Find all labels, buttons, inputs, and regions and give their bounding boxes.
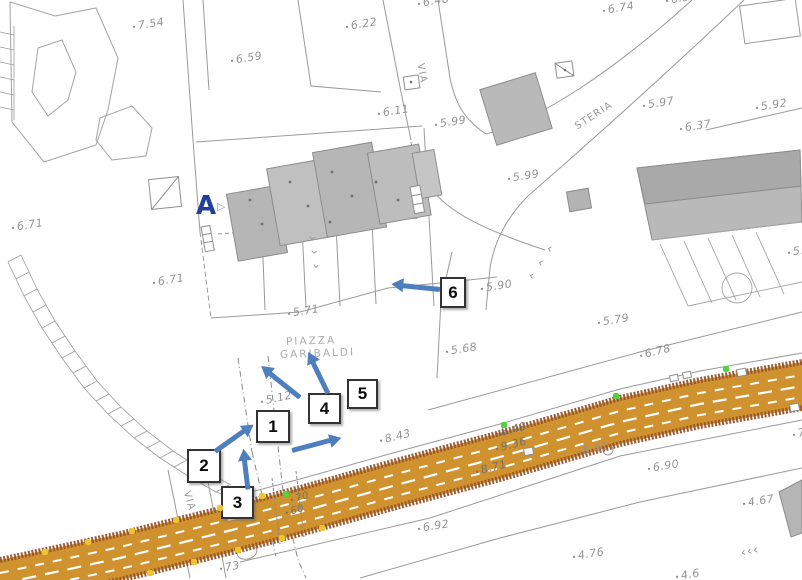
- callout-box-5[interactable]: 5: [347, 379, 378, 409]
- chevron-road-marking: ‹: [536, 255, 546, 271]
- elevation-label: 8.41: [577, 440, 610, 458]
- callout-box-3[interactable]: 3: [221, 486, 254, 519]
- elevation-label: 4.67: [742, 492, 775, 510]
- chevron-road-marking: ‹: [545, 241, 555, 257]
- place-label-piazza: PIAZZA: [286, 334, 337, 348]
- arrowhead-icon: [390, 277, 403, 292]
- road-edge-marker-yellow: [235, 547, 241, 553]
- callout-arrow-2[interactable]: [311, 361, 331, 394]
- chevron-road-marking: ‹: [527, 268, 537, 284]
- street-label-via: VIA: [181, 490, 197, 513]
- road-edge-marker-green: [283, 491, 289, 497]
- elevation-label: 73: [219, 559, 241, 575]
- arrowhead-icon: [257, 361, 275, 379]
- callout-box-1[interactable]: 1: [256, 410, 290, 443]
- elevation-label: 5.99: [434, 113, 467, 131]
- elevation-label: 5.71: [287, 302, 320, 320]
- road-edge-marker-yellow: [147, 570, 153, 576]
- elevation-label: 5.97: [642, 94, 675, 112]
- road-edge-marker-green: [723, 366, 729, 372]
- elevation-label: 6.11: [377, 102, 410, 120]
- callout-arrow-5[interactable]: [291, 437, 331, 452]
- road-edge-marker-yellow: [279, 535, 285, 541]
- elevation-label: 6.22: [345, 15, 378, 33]
- elevation-label: 5.99: [507, 167, 540, 185]
- road-edge-marker-yellow: [259, 493, 265, 499]
- elevation-label: 4.6: [675, 566, 701, 580]
- elevation-label: 6.37: [679, 117, 712, 135]
- arrowhead-icon: [239, 418, 257, 436]
- elevation-label: 5.79: [597, 311, 630, 329]
- road-edge-marker-yellow: [42, 549, 48, 555]
- road-elevation-label: 8.71: [474, 458, 508, 478]
- callout-box-6[interactable]: 6: [440, 277, 466, 308]
- arrowhead-icon: [328, 430, 343, 447]
- callout-arrow-6[interactable]: [402, 283, 441, 292]
- chevron-road-marking: ‹‹‹: [739, 542, 760, 561]
- chevron-road-marking: ›: [304, 235, 319, 242]
- road-edge-marker-yellow: [173, 517, 179, 523]
- elevation-label: 6.71: [152, 271, 185, 289]
- callout-box-4[interactable]: 4: [308, 393, 341, 424]
- section-marker-triangle-icon[interactable]: ▷: [217, 200, 225, 213]
- elevation-label: 4.76: [572, 545, 605, 563]
- elevation-label: 6.92: [417, 517, 450, 535]
- road-edge-marker-yellow: [319, 525, 325, 531]
- elevation-label: 5.92: [755, 96, 788, 114]
- callout-box-2[interactable]: 2: [187, 449, 221, 483]
- road-edge-marker-yellow: [85, 539, 91, 545]
- chevron-road-marking: ›: [308, 263, 323, 270]
- elevation-label: 6.48: [417, 0, 450, 10]
- elevation-label: 7.54: [132, 15, 165, 33]
- chevron-road-marking: ›: [306, 249, 321, 256]
- road-edge-marker-green: [613, 393, 619, 399]
- elevation-label: 6.90: [647, 457, 680, 475]
- elevation-label: 6.74: [602, 0, 635, 17]
- elevation-label: 7: [792, 426, 802, 441]
- elevation-label: 6.78: [638, 342, 672, 362]
- road-edge-marker-green: [501, 422, 507, 428]
- elevation-label: 6.71: [11, 216, 44, 234]
- road-edge-marker-yellow: [191, 559, 197, 565]
- elevation-label: 5.90: [480, 277, 513, 295]
- street-label-via: VIA: [415, 63, 429, 85]
- elevation-label: 5.9: [787, 242, 802, 259]
- annotations-layer: 7.546.596.226.486.746.545.976.375.926.11…: [0, 0, 802, 580]
- street-label-steria: STERIA: [573, 100, 615, 132]
- cadastral-map: 7.546.596.226.486.746.545.976.375.926.11…: [0, 0, 802, 580]
- road-edge-marker-yellow: [129, 528, 135, 534]
- arrowhead-icon: [236, 447, 251, 461]
- elevation-label: 6.54: [665, 0, 698, 7]
- elevation-label: 6.59: [230, 49, 263, 67]
- road-edge-marker-yellow: [217, 505, 223, 511]
- section-marker-a[interactable]: A: [196, 191, 216, 221]
- elevation-label: 8.43: [378, 427, 412, 447]
- callout-arrow-4[interactable]: [242, 459, 251, 490]
- road-elevation-label: 60: [284, 503, 305, 519]
- elevation-label: 5.68: [445, 340, 478, 358]
